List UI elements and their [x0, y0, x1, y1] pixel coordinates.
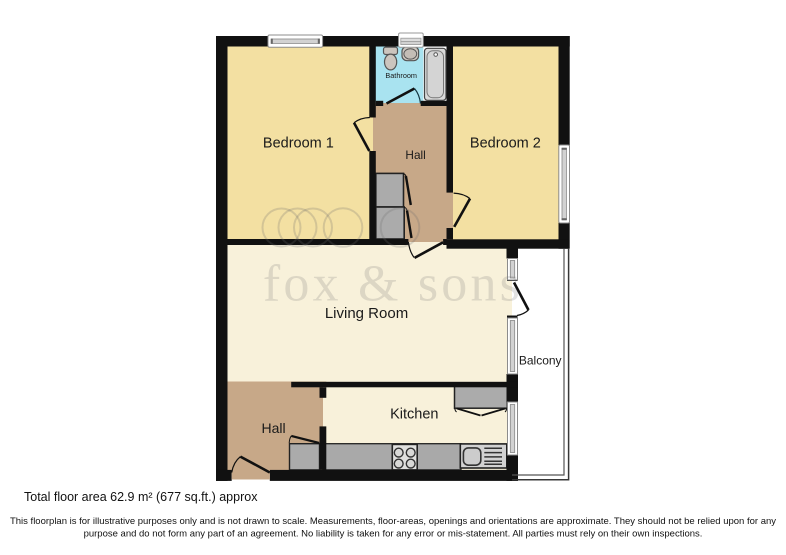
svg-text:Kitchen: Kitchen [390, 407, 438, 423]
svg-text:Bathroom: Bathroom [385, 71, 417, 80]
svg-text:This floorplan is for illustra: This floorplan is for illustrative purpo… [10, 516, 776, 527]
svg-text:Living Room: Living Room [325, 305, 408, 322]
svg-text:Hall: Hall [405, 148, 425, 162]
svg-text:Bedroom 2: Bedroom 2 [470, 136, 541, 152]
svg-text:Balcony: Balcony [519, 354, 562, 368]
svg-text:Total floor area 62.9 m² (677: Total floor area 62.9 m² (677 sq.ft.) ap… [24, 490, 258, 504]
svg-text:Bedroom 1: Bedroom 1 [263, 136, 334, 152]
svg-text:purpose and do not form any pa: purpose and do not form any part of an a… [84, 529, 703, 540]
svg-text:Hall: Hall [262, 420, 286, 436]
